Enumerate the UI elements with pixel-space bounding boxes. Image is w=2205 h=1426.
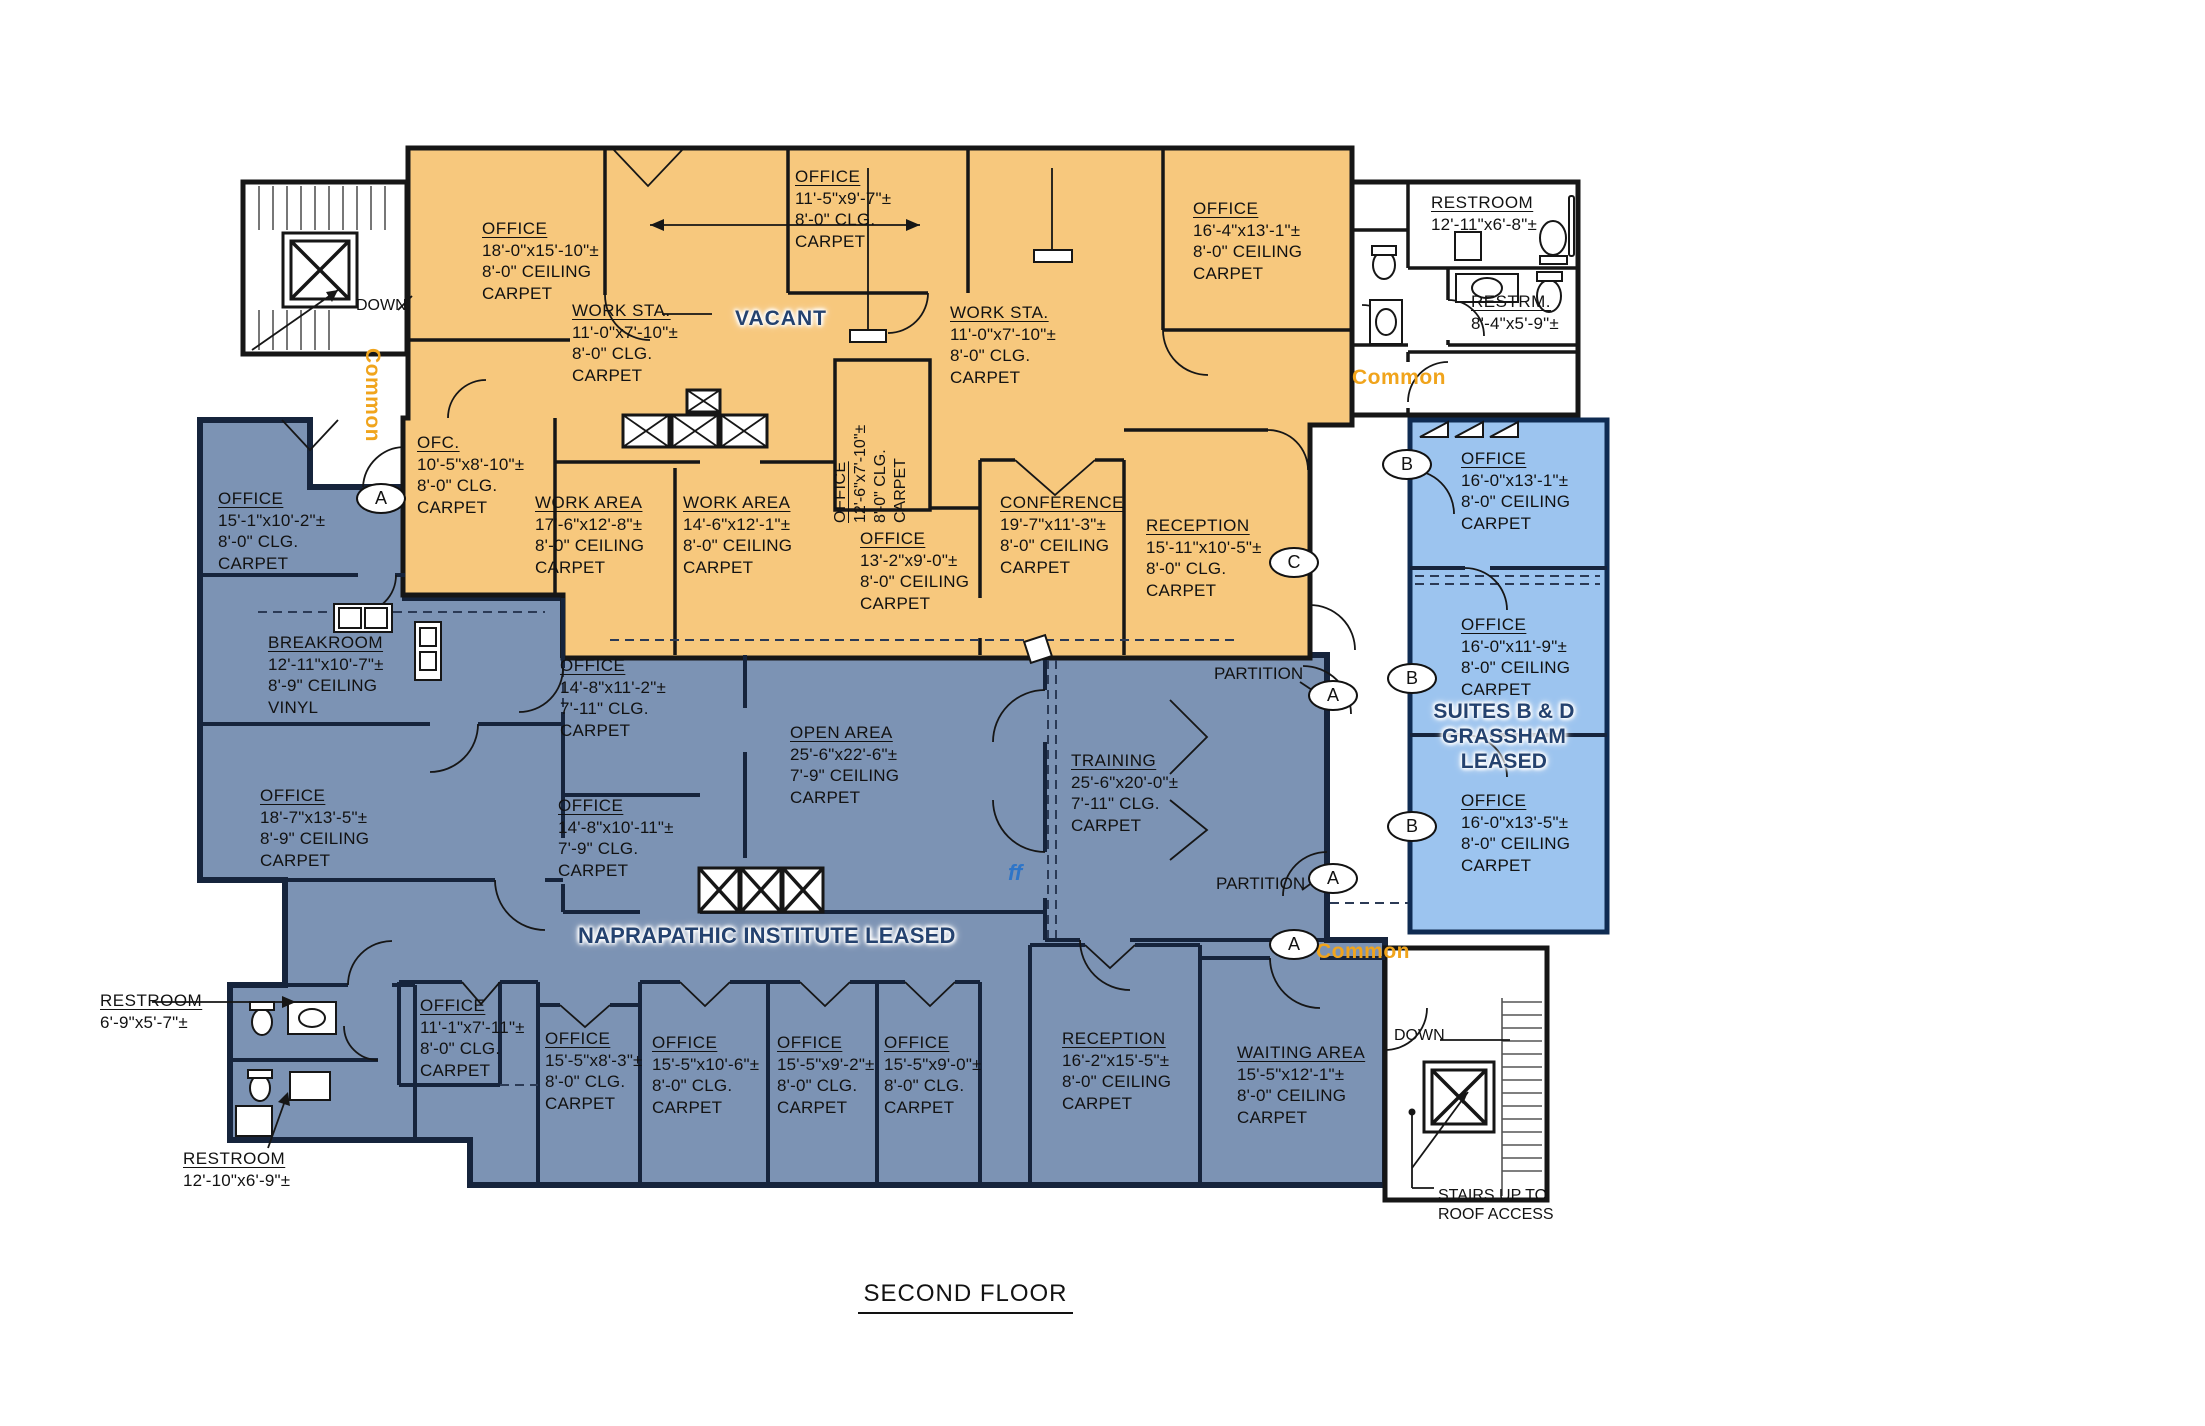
room-dims: 15'-1"x10'-2"± [218, 510, 325, 532]
room-floor: CARPET [884, 1097, 982, 1119]
room-floor: CARPET [683, 557, 792, 579]
room-label: RESTROOM 12'-10"x6'-9"± [183, 1148, 290, 1191]
room-dims: 15'-5"x8'-3"± [545, 1050, 643, 1072]
room-label: OFFICE 16'-0"x13'-5"± 8'-0" CEILING CARP… [1461, 790, 1570, 876]
common-label-top-right: Common [1352, 366, 1446, 390]
room-name: OFC. [417, 432, 524, 454]
stairs-roof-note: STAIRS UP TO ROOF ACCESS [1438, 1186, 1554, 1224]
room-name: OPEN AREA [790, 722, 899, 744]
room-dims: 6'-9"x5'-7"± [100, 1012, 202, 1034]
door-tag: B [1382, 449, 1432, 480]
room-floor: CARPET [558, 860, 674, 882]
room-label: OFFICE 15'-5"x9'-2"± 8'-0" CLG. CARPET [777, 1032, 875, 1118]
open-area-shafts-icon [699, 868, 823, 912]
room-label: WORK AREA 14'-6"x12'-1"± 8'-0" CEILING C… [683, 492, 792, 578]
room-name: RECEPTION [1146, 515, 1262, 537]
room-floor: CARPET [218, 553, 325, 575]
room-name: OFFICE [560, 655, 666, 677]
room-label: OFFICE 15'-1"x10'-2"± 8'-0" CLG. CARPET [218, 488, 325, 574]
room-floor: CARPET [891, 373, 911, 523]
room-dims: 16'-4"x13'-1"± [1193, 220, 1302, 242]
room-dims: 25'-6"x20'-0"± [1071, 772, 1178, 794]
room-ceiling: 8'-9" CEILING [260, 828, 369, 850]
room-dims: 16'-2"x15'-5"± [1062, 1050, 1171, 1072]
door-tag: A [1308, 680, 1358, 711]
room-floor: CARPET [1146, 580, 1262, 602]
room-floor: CARPET [652, 1097, 759, 1119]
room-label: TRAINING 25'-6"x20'-0"± 7'-11" CLG. CARP… [1071, 750, 1178, 836]
room-name: WORK STA. [572, 300, 678, 322]
room-ceiling: 8'-0" CLG. [871, 373, 891, 523]
zone-label-naprapathic: NAPRAPATHIC INSTITUTE LEASED [578, 922, 956, 950]
room-floor: CARPET [1461, 855, 1570, 877]
suites-line3: LEASED [1418, 750, 1590, 775]
room-label: OFC. 10'-5"x8'-10"± 8'-0" CLG. CARPET [417, 432, 524, 518]
room-floor: CARPET [572, 365, 678, 387]
common-label-bottom: Common [1316, 940, 1410, 964]
room-ceiling: 8'-0" CLG. [420, 1038, 525, 1060]
room-label: RECEPTION 15'-11"x10'-5"± 8'-0" CLG. CAR… [1146, 515, 1262, 601]
room-label-vertical: OFFICE 12'-6"x7'-10"± 8'-0" CLG. CARPET [831, 373, 931, 523]
room-floor: CARPET [420, 1060, 525, 1082]
room-label: OFFICE 16'-4"x13'-1"± 8'-0" CEILING CARP… [1193, 198, 1302, 284]
room-label: RESTROOM 6'-9"x5'-7"± [100, 990, 202, 1033]
room-dims: 25'-6"x22'-6"± [790, 744, 899, 766]
room-ceiling: 8'-0" CLG. [777, 1075, 875, 1097]
room-dims: 14'-8"x10'-11"± [558, 817, 674, 839]
room-label: OPEN AREA 25'-6"x22'-6"± 7'-9" CEILING C… [790, 722, 899, 808]
room-dims: 15'-5"x9'-2"± [777, 1054, 875, 1076]
room-ceiling: 7'-9" CLG. [558, 838, 674, 860]
room-name: OFFICE [777, 1032, 875, 1054]
room-label: OFFICE 16'-0"x11'-9"± 8'-0" CEILING CARP… [1461, 614, 1570, 700]
room-dims: 11'-0"x7'-10"± [950, 324, 1056, 346]
room-label: RECEPTION 16'-2"x15'-5"± 8'-0" CEILING C… [1062, 1028, 1171, 1114]
room-floor: CARPET [545, 1093, 643, 1115]
room-name: OFFICE [1193, 198, 1302, 220]
partition-label-top: PARTITION [1214, 664, 1303, 684]
room-name: RESTROOM [100, 990, 202, 1012]
room-ceiling: 8'-0" CEILING [1237, 1085, 1365, 1107]
room-dims: 19'-7"x11'-3"± [1000, 514, 1124, 536]
room-name: WORK STA. [950, 302, 1056, 324]
room-floor: CARPET [1071, 815, 1178, 837]
room-dims: 10'-5"x8'-10"± [417, 454, 524, 476]
room-floor: CARPET [260, 850, 369, 872]
room-label: RESTROOM 12'-11"x6'-8"± [1431, 192, 1537, 235]
room-name: OFFICE [1461, 614, 1570, 636]
zone-label-vacant: VACANT [735, 306, 827, 333]
stairs-note-line1: STAIRS UP TO [1438, 1186, 1554, 1205]
door-tag: B [1387, 811, 1437, 842]
plan-title: SECOND FLOOR [858, 1280, 1073, 1314]
floor-plan: OFFICE 18'-0"x15'-10"± 8'-0" CEILING CAR… [0, 0, 2205, 1426]
room-dims: 11'-0"x7'-10"± [572, 322, 678, 344]
room-name: OFFICE [860, 528, 969, 550]
room-floor: CARPET [1062, 1093, 1171, 1115]
room-floor: CARPET [950, 367, 1056, 389]
room-dims: 16'-0"x13'-1"± [1461, 470, 1570, 492]
room-label: OFFICE 11'-5"x9'-7"± 8'-0" CLG. CARPET [795, 166, 891, 252]
room-dims: 15'-11"x10'-5"± [1146, 537, 1262, 559]
room-dims: 14'-8"x11'-2"± [560, 677, 666, 699]
room-floor: CARPET [560, 720, 666, 742]
room-dims: 12'-11"x6'-8"± [1431, 214, 1537, 236]
room-dims: 18'-7"x13'-5"± [260, 807, 369, 829]
room-name: OFFICE [884, 1032, 982, 1054]
room-ceiling: 8'-0" CEILING [683, 535, 792, 557]
room-name: WORK AREA [683, 492, 792, 514]
room-floor: CARPET [535, 557, 644, 579]
room-ceiling: 8'-0" CEILING [1461, 657, 1570, 679]
room-dims: 13'-2"x9'-0"± [860, 550, 969, 572]
room-ceiling: 8'-0" CLG. [572, 343, 678, 365]
room-ceiling: 8'-0" CEILING [535, 535, 644, 557]
room-dims: 14'-6"x12'-1"± [683, 514, 792, 536]
room-name: CONFERENCE [1000, 492, 1124, 514]
room-label: OFFICE 16'-0"x13'-1"± 8'-0" CEILING CARP… [1461, 448, 1570, 534]
room-ceiling: 8'-0" CEILING [482, 261, 599, 283]
room-ceiling: 8'-0" CLG. [417, 475, 524, 497]
room-ceiling: 8'-0" CEILING [860, 571, 969, 593]
room-ceiling: 8'-0" CEILING [1461, 833, 1570, 855]
room-name: OFFICE [558, 795, 674, 817]
room-ceiling: 8'-0" CEILING [1193, 241, 1302, 263]
door-tag: A [1308, 863, 1358, 894]
room-label: OFFICE 11'-1"x7'-11"± 8'-0" CLG. CARPET [420, 995, 525, 1081]
stairs-note-line2: ROOF ACCESS [1438, 1205, 1554, 1224]
room-label: WAITING AREA 15'-5"x12'-1"± 8'-0" CEILIN… [1237, 1042, 1365, 1128]
room-floor: CARPET [790, 787, 899, 809]
room-label: OFFICE 13'-2"x9'-0"± 8'-0" CEILING CARPE… [860, 528, 969, 614]
room-name: OFFICE [218, 488, 325, 510]
room-floor: VINYL [268, 697, 384, 719]
room-ceiling: 8'-0" CLG. [652, 1075, 759, 1097]
room-floor: CARPET [1237, 1107, 1365, 1129]
room-ceiling: 8'-9" CEILING [268, 675, 384, 697]
room-ceiling: 8'-0" CLG. [884, 1075, 982, 1097]
common-label-vertical: Common [360, 348, 384, 458]
room-dims: 18'-0"x15'-10"± [482, 240, 599, 262]
room-label: BREAKROOM 12'-11"x10'-7"± 8'-9" CEILING … [268, 632, 384, 718]
room-dims: 12'-6"x7'-10"± [851, 373, 871, 523]
room-ceiling: 8'-0" CLG. [218, 531, 325, 553]
room-name: RESTROOM [183, 1148, 290, 1170]
room-ceiling: 8'-0" CLG. [545, 1071, 643, 1093]
room-label: OFFICE 15'-5"x10'-6"± 8'-0" CLG. CARPET [652, 1032, 759, 1118]
room-ceiling: 8'-0" CEILING [1000, 535, 1124, 557]
room-floor: CARPET [1461, 679, 1570, 701]
room-name: BREAKROOM [268, 632, 384, 654]
room-label: OFFICE 18'-7"x13'-5"± 8'-9" CEILING CARP… [260, 785, 369, 871]
room-dims: 15'-5"x9'-0"± [884, 1054, 982, 1076]
room-name: OFFICE [1461, 790, 1570, 812]
room-label: OFFICE 18'-0"x15'-10"± 8'-0" CEILING CAR… [482, 218, 599, 304]
room-label: WORK AREA 17'-6"x12'-8"± 8'-0" CEILING C… [535, 492, 644, 578]
room-name: OFFICE [260, 785, 369, 807]
room-name: TRAINING [1071, 750, 1178, 772]
room-ceiling: 8'-0" CEILING [1461, 491, 1570, 513]
room-dims: 16'-0"x11'-9"± [1461, 636, 1570, 658]
room-floor: CARPET [777, 1097, 875, 1119]
room-name: OFFICE [1461, 448, 1570, 470]
zone-label-suites: SUITES B & D GRASSHAM LEASED [1418, 700, 1590, 774]
room-ceiling: 8'-0" CLG. [950, 345, 1056, 367]
room-name: WAITING AREA [1237, 1042, 1365, 1064]
room-dims: 12'-10"x6'-9"± [183, 1170, 290, 1192]
room-label: OFFICE 15'-5"x8'-3"± 8'-0" CLG. CARPET [545, 1028, 643, 1114]
suites-line1: SUITES B & D [1418, 700, 1590, 725]
ff-note: ff [1008, 860, 1022, 886]
room-name: RECEPTION [1062, 1028, 1171, 1050]
room-floor: CARPET [795, 231, 891, 253]
room-label: WORK STA. 11'-0"x7'-10"± 8'-0" CLG. CARP… [950, 302, 1056, 388]
room-name: OFFICE [545, 1028, 643, 1050]
room-ceiling: 8'-0" CLG. [1146, 558, 1262, 580]
door-tag: A [356, 483, 406, 514]
room-dims: 16'-0"x13'-5"± [1461, 812, 1570, 834]
room-label: CONFERENCE 19'-7"x11'-3"± 8'-0" CEILING … [1000, 492, 1124, 578]
room-dims: 12'-11"x10'-7"± [268, 654, 384, 676]
partition-label-bottom: PARTITION [1216, 874, 1305, 894]
room-ceiling: 8'-0" CEILING [1062, 1071, 1171, 1093]
room-label: OFFICE 15'-5"x9'-0"± 8'-0" CLG. CARPET [884, 1032, 982, 1118]
door-tag: B [1387, 663, 1437, 694]
room-floor: CARPET [860, 593, 969, 615]
room-name: OFFICE [831, 373, 851, 523]
door-tag: A [1269, 929, 1319, 960]
room-label: WORK STA. 11'-0"x7'-10"± 8'-0" CLG. CARP… [572, 300, 678, 386]
room-dims: 11'-5"x9'-7"± [795, 188, 891, 210]
room-label: RESTRM. 8'-4"x5'-9"± [1471, 291, 1559, 334]
room-name: OFFICE [795, 166, 891, 188]
room-floor: CARPET [1193, 263, 1302, 285]
room-ceiling: 7'-11" CLG. [1071, 793, 1178, 815]
room-floor: CARPET [1461, 513, 1570, 535]
room-ceiling: 7'-9" CEILING [790, 765, 899, 787]
room-name: OFFICE [652, 1032, 759, 1054]
room-ceiling: 7'-11" CLG. [560, 698, 666, 720]
elevator-icon [283, 233, 357, 307]
down-label-bottom-right: DOWN [1394, 1026, 1445, 1045]
room-dims: 8'-4"x5'-9"± [1471, 313, 1559, 335]
room-label: OFFICE 14'-8"x11'-2"± 7'-11" CLG. CARPET [560, 655, 666, 741]
room-ceiling: 8'-0" CLG. [795, 209, 891, 231]
room-floor: CARPET [417, 497, 524, 519]
room-name: WORK AREA [535, 492, 644, 514]
room-dims: 11'-1"x7'-11"± [420, 1017, 525, 1039]
suites-line2: GRASSHAM [1418, 725, 1590, 750]
room-name: RESTROOM [1431, 192, 1537, 214]
room-dims: 17'-6"x12'-8"± [535, 514, 644, 536]
room-floor: CARPET [1000, 557, 1124, 579]
room-label: OFFICE 14'-8"x10'-11"± 7'-9" CLG. CARPET [558, 795, 674, 881]
room-name: RESTRM. [1471, 291, 1559, 313]
down-label-top-left: DOWN [356, 296, 407, 315]
door-tag: C [1269, 547, 1319, 578]
room-name: OFFICE [482, 218, 599, 240]
room-name: OFFICE [420, 995, 525, 1017]
room-dims: 15'-5"x10'-6"± [652, 1054, 759, 1076]
room-dims: 15'-5"x12'-1"± [1237, 1064, 1365, 1086]
